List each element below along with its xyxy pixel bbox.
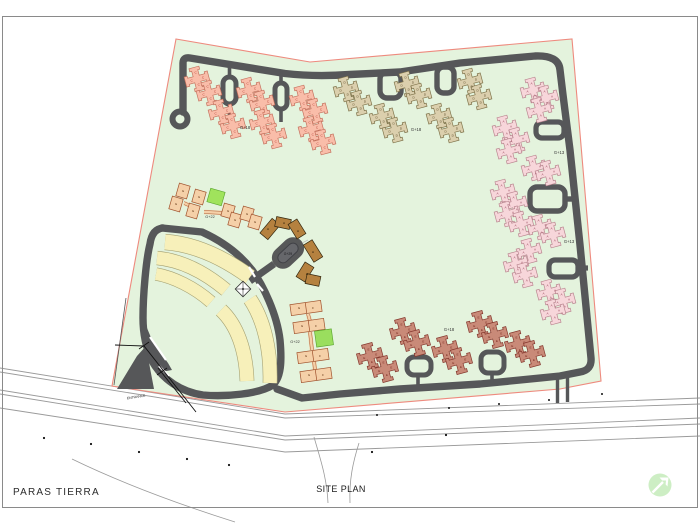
- svg-text:E: E: [523, 341, 525, 345]
- svg-text:E: E: [418, 347, 420, 351]
- svg-text:PARAS TIERRA: PARAS TIERRA: [13, 487, 100, 498]
- svg-text:G+13: G+13: [554, 150, 565, 155]
- svg-text:H: H: [312, 250, 314, 254]
- svg-text:G+13: G+13: [564, 239, 575, 244]
- svg-text:E: E: [404, 335, 406, 339]
- svg-text:E: E: [408, 328, 410, 332]
- svg-text:E: E: [363, 356, 365, 360]
- svg-text:E: E: [382, 360, 384, 364]
- svg-text:E: E: [492, 326, 494, 330]
- svg-text:E: E: [464, 358, 466, 362]
- svg-text:E: E: [519, 348, 521, 352]
- svg-text:E: E: [452, 361, 454, 365]
- svg-text:E: E: [410, 343, 412, 347]
- svg-text:E: E: [386, 373, 388, 377]
- svg-text:E: E: [422, 340, 424, 344]
- svg-text:E: E: [477, 315, 479, 319]
- svg-text:E: E: [438, 349, 440, 353]
- svg-text:E: E: [446, 353, 448, 357]
- svg-text:E: E: [511, 344, 513, 348]
- svg-text:G+29: G+29: [284, 252, 293, 256]
- svg-text:E: E: [442, 340, 444, 344]
- svg-text:F: F: [315, 324, 317, 328]
- svg-text:E: E: [396, 331, 398, 335]
- svg-text:G+18: G+18: [411, 127, 422, 132]
- svg-text:E: E: [537, 351, 539, 355]
- svg-text:F: F: [312, 306, 314, 310]
- svg-text:E: E: [460, 365, 462, 369]
- svg-text:E: E: [390, 366, 392, 370]
- svg-text:E: E: [456, 352, 458, 356]
- svg-text:E: E: [400, 322, 402, 326]
- svg-text:H: H: [267, 227, 269, 231]
- svg-text:E: E: [488, 335, 490, 339]
- svg-text:E: E: [533, 358, 535, 362]
- svg-text:F: F: [319, 354, 321, 358]
- svg-text:E: E: [500, 332, 502, 336]
- svg-text:E: E: [473, 324, 475, 328]
- svg-text:E: E: [378, 369, 380, 373]
- svg-text:E: E: [485, 321, 487, 325]
- svg-text:E: E: [367, 347, 369, 351]
- svg-text:G+18: G+18: [240, 125, 251, 130]
- svg-text:E: E: [375, 353, 377, 357]
- svg-text:E: E: [481, 328, 483, 332]
- svg-text:H: H: [297, 229, 299, 233]
- svg-text:G+22: G+22: [290, 340, 299, 344]
- svg-text:E: E: [529, 345, 531, 349]
- svg-text:E: E: [371, 360, 373, 364]
- svg-text:F: F: [322, 373, 324, 377]
- svg-text:G+22: G+22: [205, 215, 214, 219]
- svg-text:E: E: [450, 346, 452, 350]
- svg-text:H: H: [283, 221, 285, 225]
- svg-text:G+18: G+18: [444, 327, 455, 332]
- svg-text:E: E: [414, 334, 416, 338]
- svg-text:H: H: [306, 272, 308, 276]
- svg-text:SITE PLAN: SITE PLAN: [316, 484, 366, 494]
- svg-text:E: E: [525, 354, 527, 358]
- svg-text:E: E: [496, 339, 498, 343]
- svg-text:E: E: [515, 335, 517, 339]
